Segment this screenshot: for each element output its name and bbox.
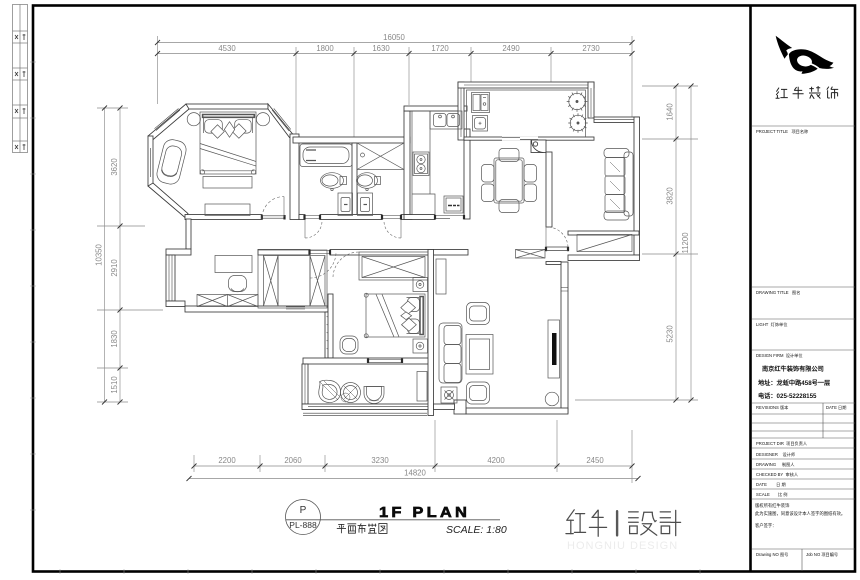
svg-text:2730: 2730: [582, 44, 600, 53]
svg-text:5230: 5230: [666, 325, 675, 343]
svg-text:1800: 1800: [316, 44, 334, 53]
svg-text:3820: 3820: [666, 187, 675, 205]
svg-text:SCALE 比 例: SCALE 比 例: [756, 491, 787, 498]
svg-text:电话：025-52228155: 电话：025-52228155: [758, 392, 817, 400]
svg-text:11200: 11200: [681, 232, 690, 254]
svg-text:1830: 1830: [110, 330, 119, 348]
svg-text:SCALE: 1:80: SCALE: 1:80: [446, 524, 507, 536]
svg-text:DATE 日 期: DATE 日 期: [756, 482, 786, 488]
svg-text:CHECKED BY 审核人: CHECKED BY 审核人: [756, 471, 799, 478]
svg-text:16050: 16050: [383, 33, 405, 42]
svg-text:1630: 1630: [372, 44, 390, 53]
svg-text:DESIGNER 设计师: DESIGNER 设计师: [756, 451, 795, 458]
svg-text:P: P: [300, 505, 307, 516]
svg-text:2910: 2910: [110, 259, 119, 277]
svg-text:DRAWING TITLE 图名: DRAWING TITLE 图名: [756, 289, 800, 296]
svg-text:PROJECT TITLE 项目名称: PROJECT TITLE 项目名称: [756, 128, 808, 135]
svg-text:2450: 2450: [586, 456, 604, 465]
svg-text:1720: 1720: [431, 44, 449, 53]
svg-text:2060: 2060: [284, 456, 302, 465]
svg-text:HONGNIU DESIGN: HONGNIU DESIGN: [567, 540, 678, 552]
svg-text:DATE 日期: DATE 日期: [826, 405, 846, 411]
svg-text:1640: 1640: [666, 103, 675, 121]
svg-text:14820: 14820: [404, 469, 426, 478]
svg-text:4200: 4200: [487, 456, 505, 465]
svg-text:2490: 2490: [502, 44, 520, 53]
svg-text:REVISIONS 版本: REVISIONS 版本: [756, 404, 789, 411]
svg-text:1F PLAN: 1F PLAN: [379, 505, 470, 521]
svg-text:1510: 1510: [110, 376, 119, 394]
svg-text:2200: 2200: [218, 456, 236, 465]
svg-text:版权所有红牛装饰: 版权所有红牛装饰: [755, 502, 790, 509]
svg-text:10350: 10350: [95, 243, 104, 265]
svg-text:3230: 3230: [371, 456, 389, 465]
svg-text:DESIGN FIRM 设计单位: DESIGN FIRM 设计单位: [756, 352, 803, 359]
svg-text:此为实施图，同意该设计本人签字的图纸有效。: 此为实施图，同意该设计本人签字的图纸有效。: [755, 510, 845, 517]
svg-text:3620: 3620: [110, 158, 119, 176]
svg-text:Drawing NO 图号: Drawing NO 图号: [756, 552, 788, 558]
svg-text:PL-888: PL-888: [289, 520, 317, 530]
svg-text:地址：龙蚯中路458号一层: 地址：龙蚯中路458号一层: [758, 379, 830, 387]
svg-text:LIGHT 灯饰单位: LIGHT 灯饰单位: [756, 321, 787, 328]
svg-text:PROJECT DIR 项目负责人: PROJECT DIR 项目负责人: [756, 440, 808, 447]
svg-text:Job NO 项目编号: Job NO 项目编号: [806, 551, 838, 558]
svg-text:DRAWING 制图人: DRAWING 制图人: [756, 461, 795, 468]
svg-text:4530: 4530: [218, 44, 236, 53]
svg-text:客户签字：: 客户签字：: [755, 522, 776, 529]
svg-text:南京红牛装饰有限公司: 南京红牛装饰有限公司: [762, 365, 824, 373]
